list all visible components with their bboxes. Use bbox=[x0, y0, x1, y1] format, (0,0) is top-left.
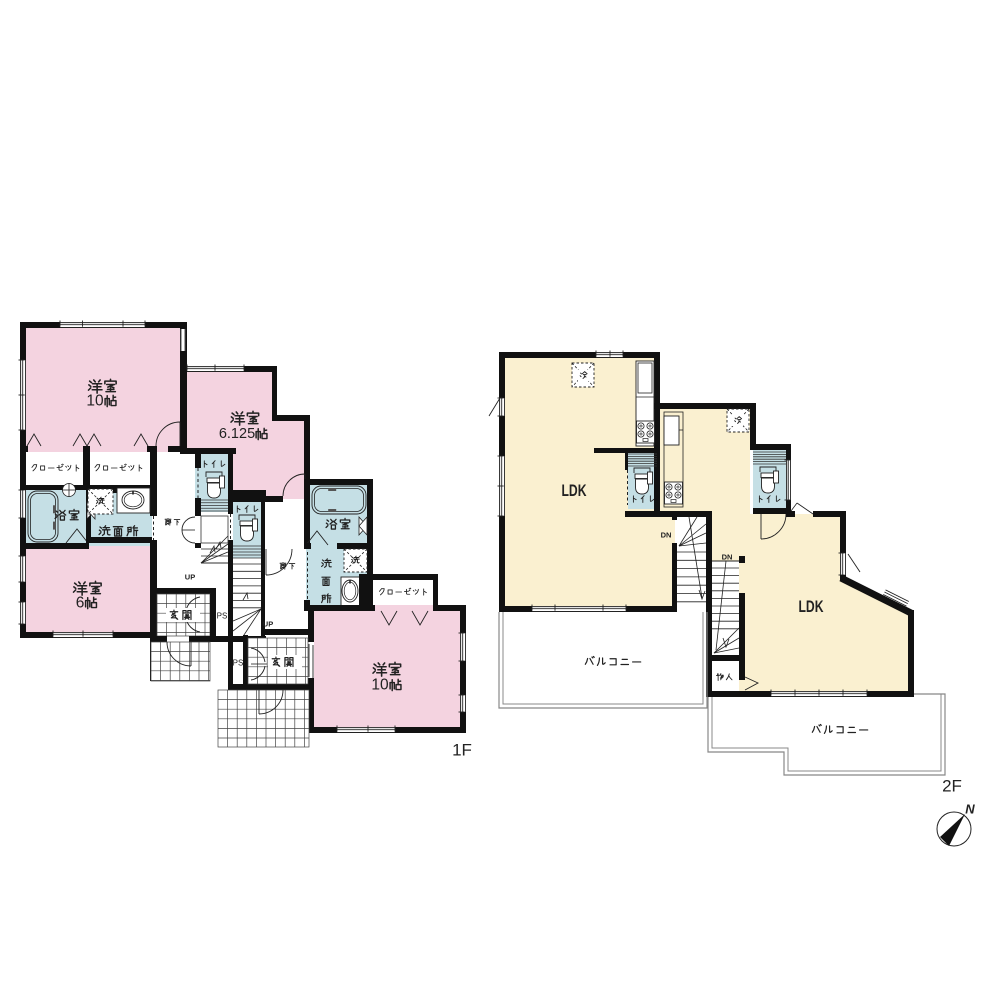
svg-text:10: 10 bbox=[86, 393, 104, 410]
svg-text:2F: 2F bbox=[942, 777, 962, 796]
svg-text:DN: DN bbox=[722, 553, 733, 562]
svg-text:PS: PS bbox=[233, 659, 244, 668]
svg-text:N: N bbox=[965, 802, 975, 817]
svg-text:UP: UP bbox=[263, 620, 273, 629]
svg-text:LDK: LDK bbox=[562, 482, 587, 500]
svg-text:1F: 1F bbox=[452, 741, 472, 760]
svg-text:DN: DN bbox=[661, 531, 672, 540]
svg-text:6.125: 6.125 bbox=[219, 426, 255, 442]
svg-text:PS: PS bbox=[217, 612, 228, 621]
svg-text:UP: UP bbox=[185, 573, 195, 582]
svg-text:LDK: LDK bbox=[799, 598, 824, 616]
svg-text:6: 6 bbox=[76, 595, 85, 612]
svg-text:10: 10 bbox=[371, 677, 389, 694]
